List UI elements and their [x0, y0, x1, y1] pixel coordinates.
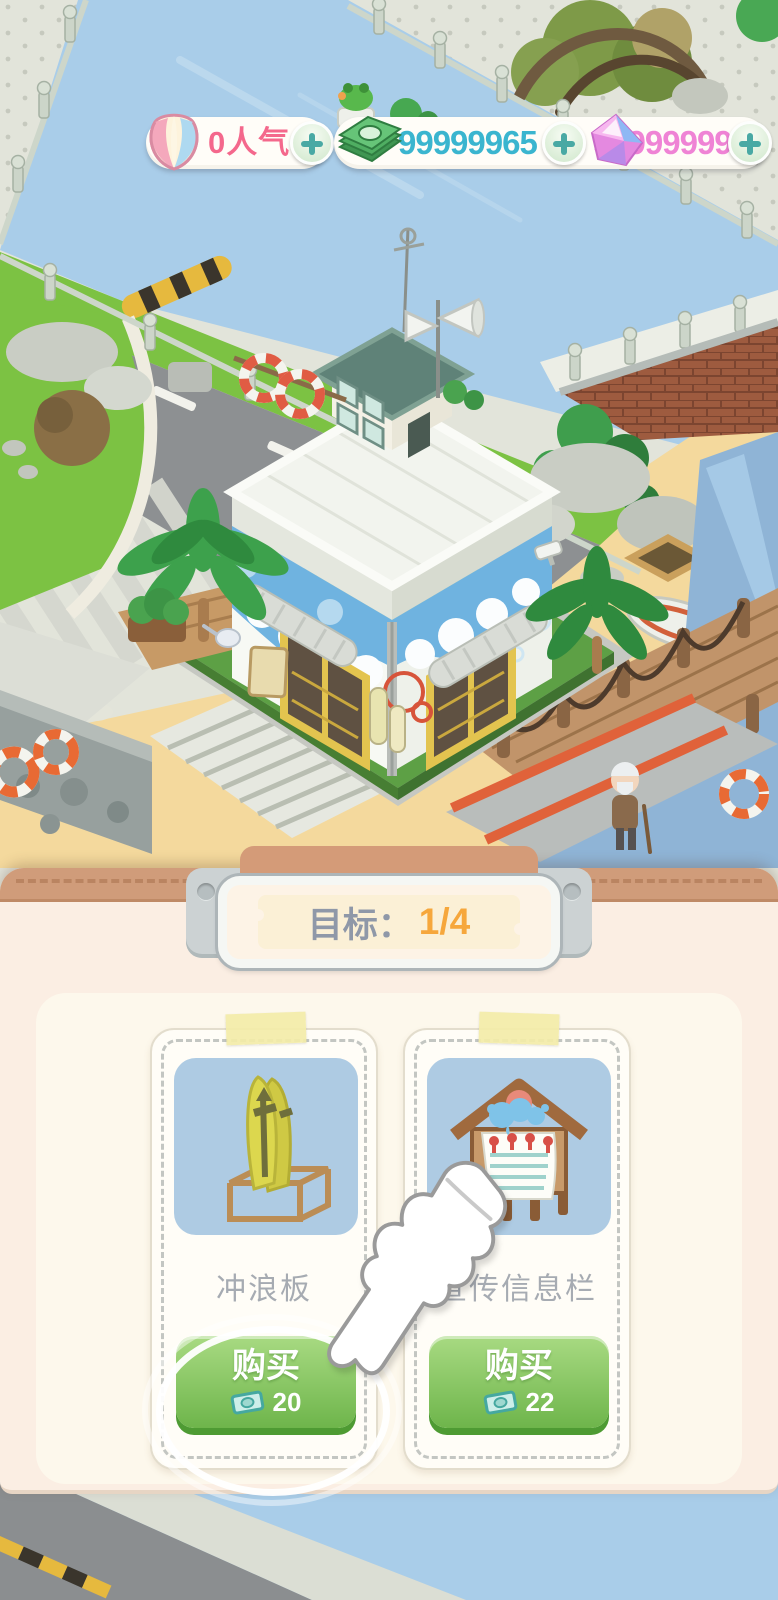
item-price: 20: [273, 1387, 302, 1418]
popularity-pill: 0人气: [146, 117, 328, 169]
screw-icon: [197, 883, 215, 901]
add-gem-button[interactable]: [728, 121, 772, 165]
buy-label: 购买: [232, 1347, 300, 1385]
wall-sign: [249, 647, 287, 697]
money-icon: [228, 1386, 266, 1418]
money-icon: [481, 1386, 519, 1418]
add-cash-button[interactable]: [542, 121, 586, 165]
shop-item-card-surfboard[interactable]: 冲浪板 购买 20: [150, 1028, 378, 1470]
cash-gem-pill: 99999965 99999999: [334, 117, 768, 169]
shop-panel: 冲浪板 购买 20: [36, 993, 742, 1484]
notice-board-icon: [444, 1071, 594, 1223]
game-screen: 0人气 99999965 99999999: [0, 0, 778, 1600]
buy-button-noticeboard[interactable]: 购买 22: [429, 1336, 609, 1428]
goal-label: 目标：: [308, 897, 413, 948]
surfboard-icon: [196, 1067, 336, 1227]
gem-value: 99999999: [593, 124, 732, 162]
goal-progress: 1/4: [419, 901, 470, 943]
tape-decoration: [225, 1012, 306, 1046]
goal-panel: 目标： 1/4: [218, 876, 560, 968]
buy-button-surfboard[interactable]: 购买 20: [176, 1336, 356, 1428]
item-name: 宣传信息栏: [405, 1264, 629, 1308]
shop-item-card-noticeboard[interactable]: 宣传信息栏 购买 22: [403, 1028, 631, 1470]
item-price: 22: [526, 1387, 555, 1418]
item-thumbnail: [427, 1058, 611, 1235]
cash-value: 99999965: [398, 124, 537, 162]
tape-decoration: [478, 1012, 559, 1046]
buy-label: 购买: [485, 1347, 553, 1385]
item-name: 冲浪板: [152, 1264, 376, 1308]
goal-label-tape: 目标： 1/4: [258, 895, 520, 949]
add-popularity-button[interactable]: [290, 121, 334, 165]
screw-icon: [563, 883, 581, 901]
item-thumbnail: [174, 1058, 358, 1235]
shop-sheet: 目标： 1/4: [0, 868, 778, 1494]
